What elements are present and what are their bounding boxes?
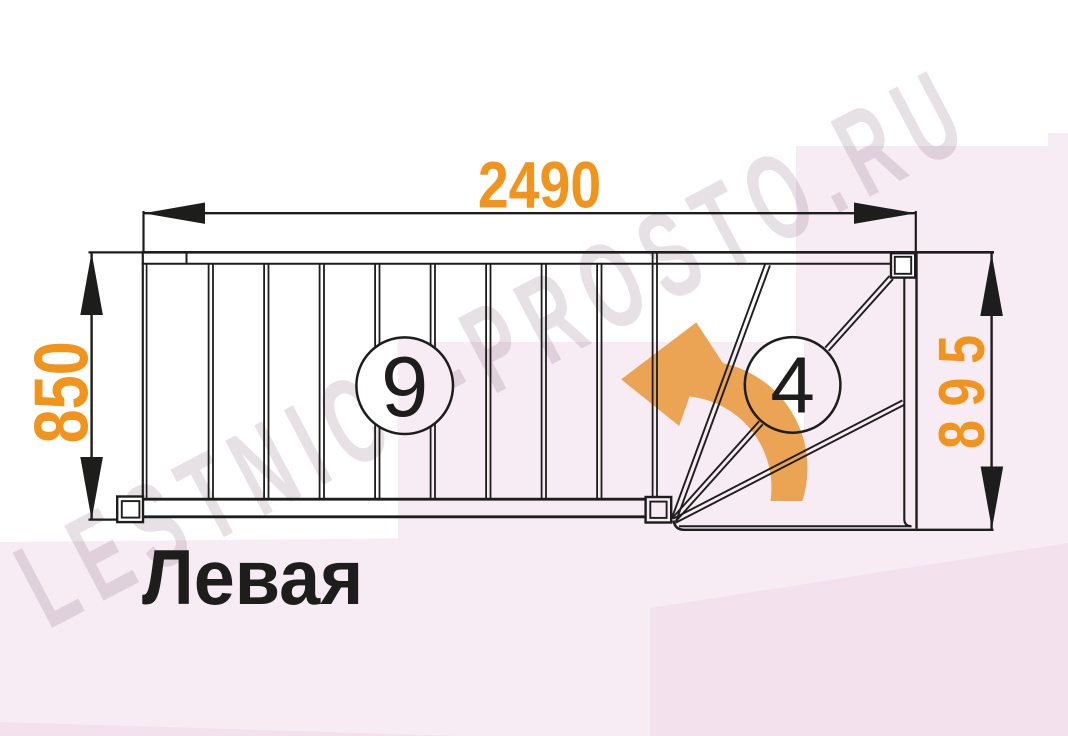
svg-text:Левая: Левая (142, 534, 363, 621)
svg-text:895: 895 (926, 321, 998, 449)
svg-text:4: 4 (770, 340, 815, 429)
svg-text:2490: 2490 (478, 148, 601, 222)
svg-text:9: 9 (381, 340, 428, 435)
svg-text:850: 850 (18, 341, 104, 443)
